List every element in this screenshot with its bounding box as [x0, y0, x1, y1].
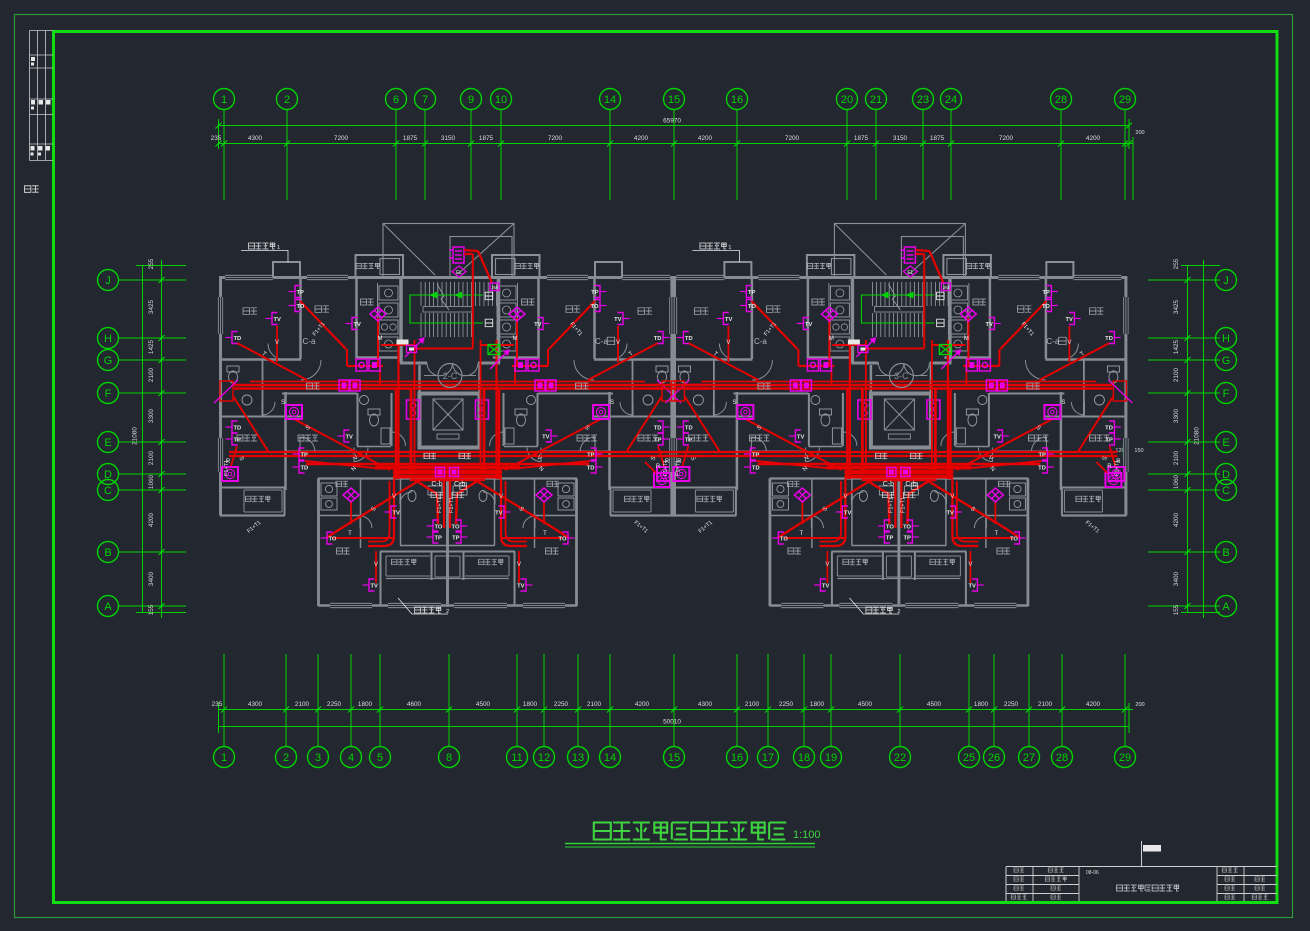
svg-text:TV: TV — [985, 322, 993, 328]
svg-text:V: V — [1067, 340, 1071, 346]
svg-text:1800: 1800 — [523, 701, 538, 708]
svg-text:4200: 4200 — [1086, 135, 1101, 142]
svg-text:TD: TD — [234, 336, 242, 342]
svg-text:V: V — [968, 562, 972, 568]
svg-text:TV: TV — [614, 317, 622, 323]
svg-text:29: 29 — [1119, 752, 1131, 764]
svg-text:255: 255 — [148, 258, 155, 269]
svg-text:TP: TP — [1038, 452, 1046, 458]
svg-text:4200: 4200 — [635, 701, 650, 708]
svg-text:7200: 7200 — [999, 135, 1014, 142]
svg-text:TV: TV — [946, 510, 954, 516]
svg-text:13: 13 — [572, 752, 584, 764]
svg-text:4300: 4300 — [248, 701, 263, 708]
svg-text:S: S — [1061, 400, 1065, 406]
svg-text:TP: TP — [591, 290, 599, 296]
svg-text:F1+T1: F1+T1 — [224, 460, 230, 476]
svg-text:TV: TV — [542, 434, 550, 440]
svg-text:TV: TV — [354, 322, 362, 328]
svg-text:TO: TO — [329, 536, 337, 542]
svg-text:TD: TD — [685, 336, 693, 342]
svg-text:V: V — [517, 562, 521, 568]
svg-text:2100: 2100 — [1173, 450, 1180, 465]
svg-text:V: V — [275, 340, 279, 346]
svg-text:F: F — [105, 388, 112, 400]
svg-text:155: 155 — [1173, 604, 1180, 615]
svg-text:17: 17 — [762, 752, 774, 764]
svg-text:C-a: C-a — [754, 337, 767, 346]
svg-text:1800: 1800 — [974, 701, 989, 708]
svg-text:TP: TP — [435, 535, 443, 541]
svg-text:2: 2 — [284, 94, 290, 106]
svg-text:TP: TP — [752, 452, 760, 458]
svg-text:TO: TO — [559, 536, 567, 542]
svg-text:TO: TO — [591, 304, 599, 310]
svg-text:TV: TV — [393, 510, 401, 516]
svg-text:F1+T1: F1+T1 — [675, 460, 681, 476]
svg-text:1875: 1875 — [479, 135, 494, 142]
svg-text:3400: 3400 — [1173, 571, 1180, 586]
svg-text:3300: 3300 — [1173, 408, 1180, 423]
svg-text:C-a: C-a — [303, 337, 316, 346]
svg-text:B: B — [1222, 547, 1229, 559]
svg-text:7200: 7200 — [548, 135, 563, 142]
svg-text:2100: 2100 — [148, 367, 155, 382]
svg-text:24: 24 — [945, 94, 957, 106]
svg-text:F: F — [1223, 388, 1230, 400]
svg-text:TD: TD — [1105, 336, 1113, 342]
svg-text:14: 14 — [604, 94, 616, 106]
svg-text:TV: TV — [517, 583, 525, 589]
svg-text:TD: TD — [301, 465, 309, 471]
svg-text:C-b: C-b — [431, 481, 442, 488]
svg-text:F1+T1: F1+T1 — [449, 497, 455, 513]
svg-text:28: 28 — [1055, 94, 1067, 106]
svg-text:TV: TV — [274, 317, 282, 323]
svg-text:25: 25 — [963, 752, 975, 764]
svg-text:4500: 4500 — [858, 701, 873, 708]
svg-text:2100: 2100 — [587, 701, 602, 708]
svg-text:H: H — [104, 333, 112, 345]
svg-text:T: T — [543, 531, 547, 537]
svg-text:2: 2 — [446, 609, 449, 615]
svg-text:A: A — [104, 601, 112, 613]
svg-text:16: 16 — [731, 752, 743, 764]
svg-text:150: 150 — [1134, 448, 1143, 454]
svg-text:T: T — [800, 531, 804, 537]
svg-text:2100: 2100 — [295, 701, 310, 708]
svg-text:15: 15 — [668, 94, 680, 106]
svg-text:TO: TO — [297, 304, 305, 310]
svg-text:2100: 2100 — [148, 450, 155, 465]
svg-text:TP: TP — [301, 452, 309, 458]
svg-text:3-C: 3-C — [894, 371, 909, 381]
svg-text:2250: 2250 — [327, 701, 342, 708]
svg-text:200: 200 — [1135, 702, 1144, 708]
svg-text:C: C — [1222, 485, 1230, 497]
svg-text:12: 12 — [538, 752, 550, 764]
svg-text:7200: 7200 — [785, 135, 800, 142]
svg-text:TD: TD — [654, 336, 662, 342]
svg-text:S: S — [732, 400, 736, 406]
svg-text:M: M — [964, 336, 969, 342]
svg-text:4200: 4200 — [148, 512, 155, 527]
svg-text:TV: TV — [822, 583, 830, 589]
svg-text:R: R — [656, 464, 661, 470]
svg-text:T: T — [348, 531, 352, 537]
svg-text:16: 16 — [731, 94, 743, 106]
svg-text:TD: TD — [234, 425, 242, 431]
svg-text:V: V — [499, 494, 503, 500]
svg-text:TO: TO — [886, 524, 894, 530]
svg-text:65970: 65970 — [663, 118, 681, 125]
svg-text:2250: 2250 — [779, 701, 794, 708]
svg-text:200: 200 — [1135, 130, 1144, 136]
svg-text:TV: TV — [495, 510, 503, 516]
svg-text:2M: 2M — [491, 285, 498, 290]
svg-text:TP: TP — [886, 535, 894, 541]
svg-text:5: 5 — [377, 752, 383, 764]
svg-text:TD: TD — [752, 465, 760, 471]
svg-text:S: S — [610, 400, 614, 406]
svg-text:19: 19 — [825, 752, 837, 764]
svg-text:G: G — [1222, 355, 1231, 367]
svg-text:TV: TV — [1065, 317, 1073, 323]
svg-text:E: E — [104, 437, 111, 449]
svg-text:15: 15 — [668, 752, 680, 764]
svg-text:G: G — [104, 355, 113, 367]
svg-text:TO: TO — [452, 524, 460, 530]
svg-text:14: 14 — [604, 752, 616, 764]
svg-text:A: A — [1222, 601, 1230, 613]
svg-text:V: V — [950, 494, 954, 500]
svg-text:3425: 3425 — [148, 299, 155, 314]
svg-text:4500: 4500 — [927, 701, 942, 708]
svg-text:TP: TP — [452, 535, 460, 541]
svg-text:C-b: C-b — [883, 481, 894, 488]
svg-text:TP: TP — [748, 290, 756, 296]
svg-text:1875: 1875 — [403, 135, 418, 142]
svg-text:T: T — [995, 531, 999, 537]
svg-text:V: V — [374, 562, 378, 568]
svg-text:F1+T1: F1+T1 — [888, 497, 894, 513]
svg-text:27: 27 — [1023, 752, 1035, 764]
svg-text:TD: TD — [685, 425, 693, 431]
svg-text:6: 6 — [393, 94, 399, 106]
svg-text:2: 2 — [283, 752, 289, 764]
svg-text:TP: TP — [1042, 290, 1050, 296]
svg-text:255: 255 — [1173, 258, 1180, 269]
svg-text:TV: TV — [993, 434, 1001, 440]
svg-text:08-06: 08-06 — [1086, 870, 1099, 876]
svg-text:V: V — [825, 562, 829, 568]
svg-text:4600: 4600 — [407, 701, 422, 708]
svg-text:TD: TD — [654, 425, 662, 431]
svg-text:3150: 3150 — [893, 135, 908, 142]
svg-text:22: 22 — [894, 752, 906, 764]
svg-text:18: 18 — [798, 752, 810, 764]
svg-text:C-a: C-a — [1046, 337, 1059, 346]
svg-text:4500: 4500 — [476, 701, 491, 708]
svg-text:TV: TV — [725, 317, 733, 323]
svg-text:1875: 1875 — [854, 135, 869, 142]
svg-text:E: E — [1222, 437, 1229, 449]
svg-text:2M: 2M — [943, 285, 950, 290]
svg-text:2100: 2100 — [1038, 701, 1053, 708]
svg-text:1: 1 — [221, 94, 227, 106]
svg-text:TO: TO — [435, 524, 443, 530]
svg-text:29: 29 — [1119, 94, 1131, 106]
svg-text:TD: TD — [1105, 425, 1113, 431]
svg-text:2: 2 — [897, 609, 900, 615]
svg-text:4300: 4300 — [698, 701, 713, 708]
svg-text:1: 1 — [221, 752, 227, 764]
svg-text:4200: 4200 — [634, 135, 649, 142]
svg-text:TV: TV — [534, 322, 542, 328]
svg-text:2-C: 2-C — [443, 371, 458, 381]
svg-text:20: 20 — [841, 94, 853, 106]
svg-text:4200: 4200 — [1086, 701, 1101, 708]
svg-text:V: V — [726, 340, 730, 346]
svg-text:B: B — [104, 547, 111, 559]
svg-text:TO: TO — [1010, 536, 1018, 542]
svg-text:21080: 21080 — [1194, 427, 1201, 445]
svg-text:4200: 4200 — [1173, 512, 1180, 527]
svg-text:3150: 3150 — [441, 135, 456, 142]
svg-text:H: H — [1222, 333, 1230, 345]
svg-text:2250: 2250 — [1004, 701, 1019, 708]
svg-text:3300: 3300 — [148, 408, 155, 423]
svg-text:TP: TP — [297, 290, 305, 296]
svg-text:8: 8 — [446, 752, 452, 764]
svg-text:TO: TO — [903, 524, 911, 530]
svg-text:F1+T1: F1+T1 — [437, 497, 443, 513]
svg-text:9: 9 — [468, 94, 474, 106]
svg-text:TV: TV — [805, 322, 813, 328]
svg-text:1875: 1875 — [930, 135, 945, 142]
svg-text:3425: 3425 — [1173, 299, 1180, 314]
svg-text:1060: 1060 — [1173, 474, 1180, 489]
svg-text:TO: TO — [1042, 304, 1050, 310]
svg-text:TO: TO — [780, 536, 788, 542]
svg-text:TV: TV — [797, 434, 805, 440]
svg-text:4300: 4300 — [248, 135, 263, 142]
svg-text:J: J — [105, 275, 111, 287]
svg-text:TO: TO — [748, 304, 756, 310]
svg-text:1425: 1425 — [148, 339, 155, 354]
svg-text:2100: 2100 — [745, 701, 760, 708]
svg-text:21080: 21080 — [132, 427, 139, 445]
svg-text:J: J — [1223, 275, 1229, 287]
svg-text:155: 155 — [148, 604, 155, 615]
svg-text:TD: TD — [1038, 465, 1046, 471]
svg-text:C: C — [104, 485, 112, 497]
svg-text:2250: 2250 — [554, 701, 569, 708]
svg-text:C-a: C-a — [595, 337, 608, 346]
svg-text:26: 26 — [988, 752, 1000, 764]
svg-text:3: 3 — [315, 752, 321, 764]
svg-text:TV: TV — [371, 583, 379, 589]
svg-text:V: V — [616, 340, 620, 346]
svg-text:28: 28 — [1056, 752, 1068, 764]
svg-text:10: 10 — [495, 94, 507, 106]
svg-text:TV: TV — [346, 434, 354, 440]
svg-text:2100: 2100 — [1173, 367, 1180, 382]
svg-text:7: 7 — [422, 94, 428, 106]
svg-text:R: R — [1107, 464, 1112, 470]
svg-text:F1+T1: F1+T1 — [900, 497, 906, 513]
svg-text:TD: TD — [587, 465, 595, 471]
svg-text:50010: 50010 — [663, 719, 681, 726]
svg-text:M: M — [378, 336, 383, 342]
svg-text:1800: 1800 — [810, 701, 825, 708]
svg-text:EL: EL — [456, 270, 462, 276]
svg-text:TP: TP — [903, 535, 911, 541]
svg-text:M: M — [513, 336, 518, 342]
svg-text:1425: 1425 — [1173, 339, 1180, 354]
svg-text:21: 21 — [870, 94, 882, 106]
svg-text:1800: 1800 — [358, 701, 373, 708]
svg-text:235: 235 — [211, 135, 222, 142]
svg-text:4200: 4200 — [698, 135, 713, 142]
svg-text:11: 11 — [511, 752, 522, 764]
svg-text:4: 4 — [348, 752, 354, 764]
svg-text:S: S — [281, 400, 285, 406]
svg-text:1060: 1060 — [148, 474, 155, 489]
svg-text:EL: EL — [907, 270, 913, 276]
svg-text:3400: 3400 — [148, 571, 155, 586]
svg-text:TV: TV — [844, 510, 852, 516]
svg-text:235: 235 — [212, 701, 223, 708]
svg-text:23: 23 — [917, 94, 929, 106]
svg-text:TP: TP — [587, 452, 595, 458]
svg-text:M: M — [829, 336, 834, 342]
svg-text:V: V — [843, 494, 847, 500]
svg-text:7200: 7200 — [334, 135, 349, 142]
svg-text:TV: TV — [968, 583, 976, 589]
svg-text:1:100: 1:100 — [793, 829, 821, 841]
svg-text:V: V — [392, 494, 396, 500]
